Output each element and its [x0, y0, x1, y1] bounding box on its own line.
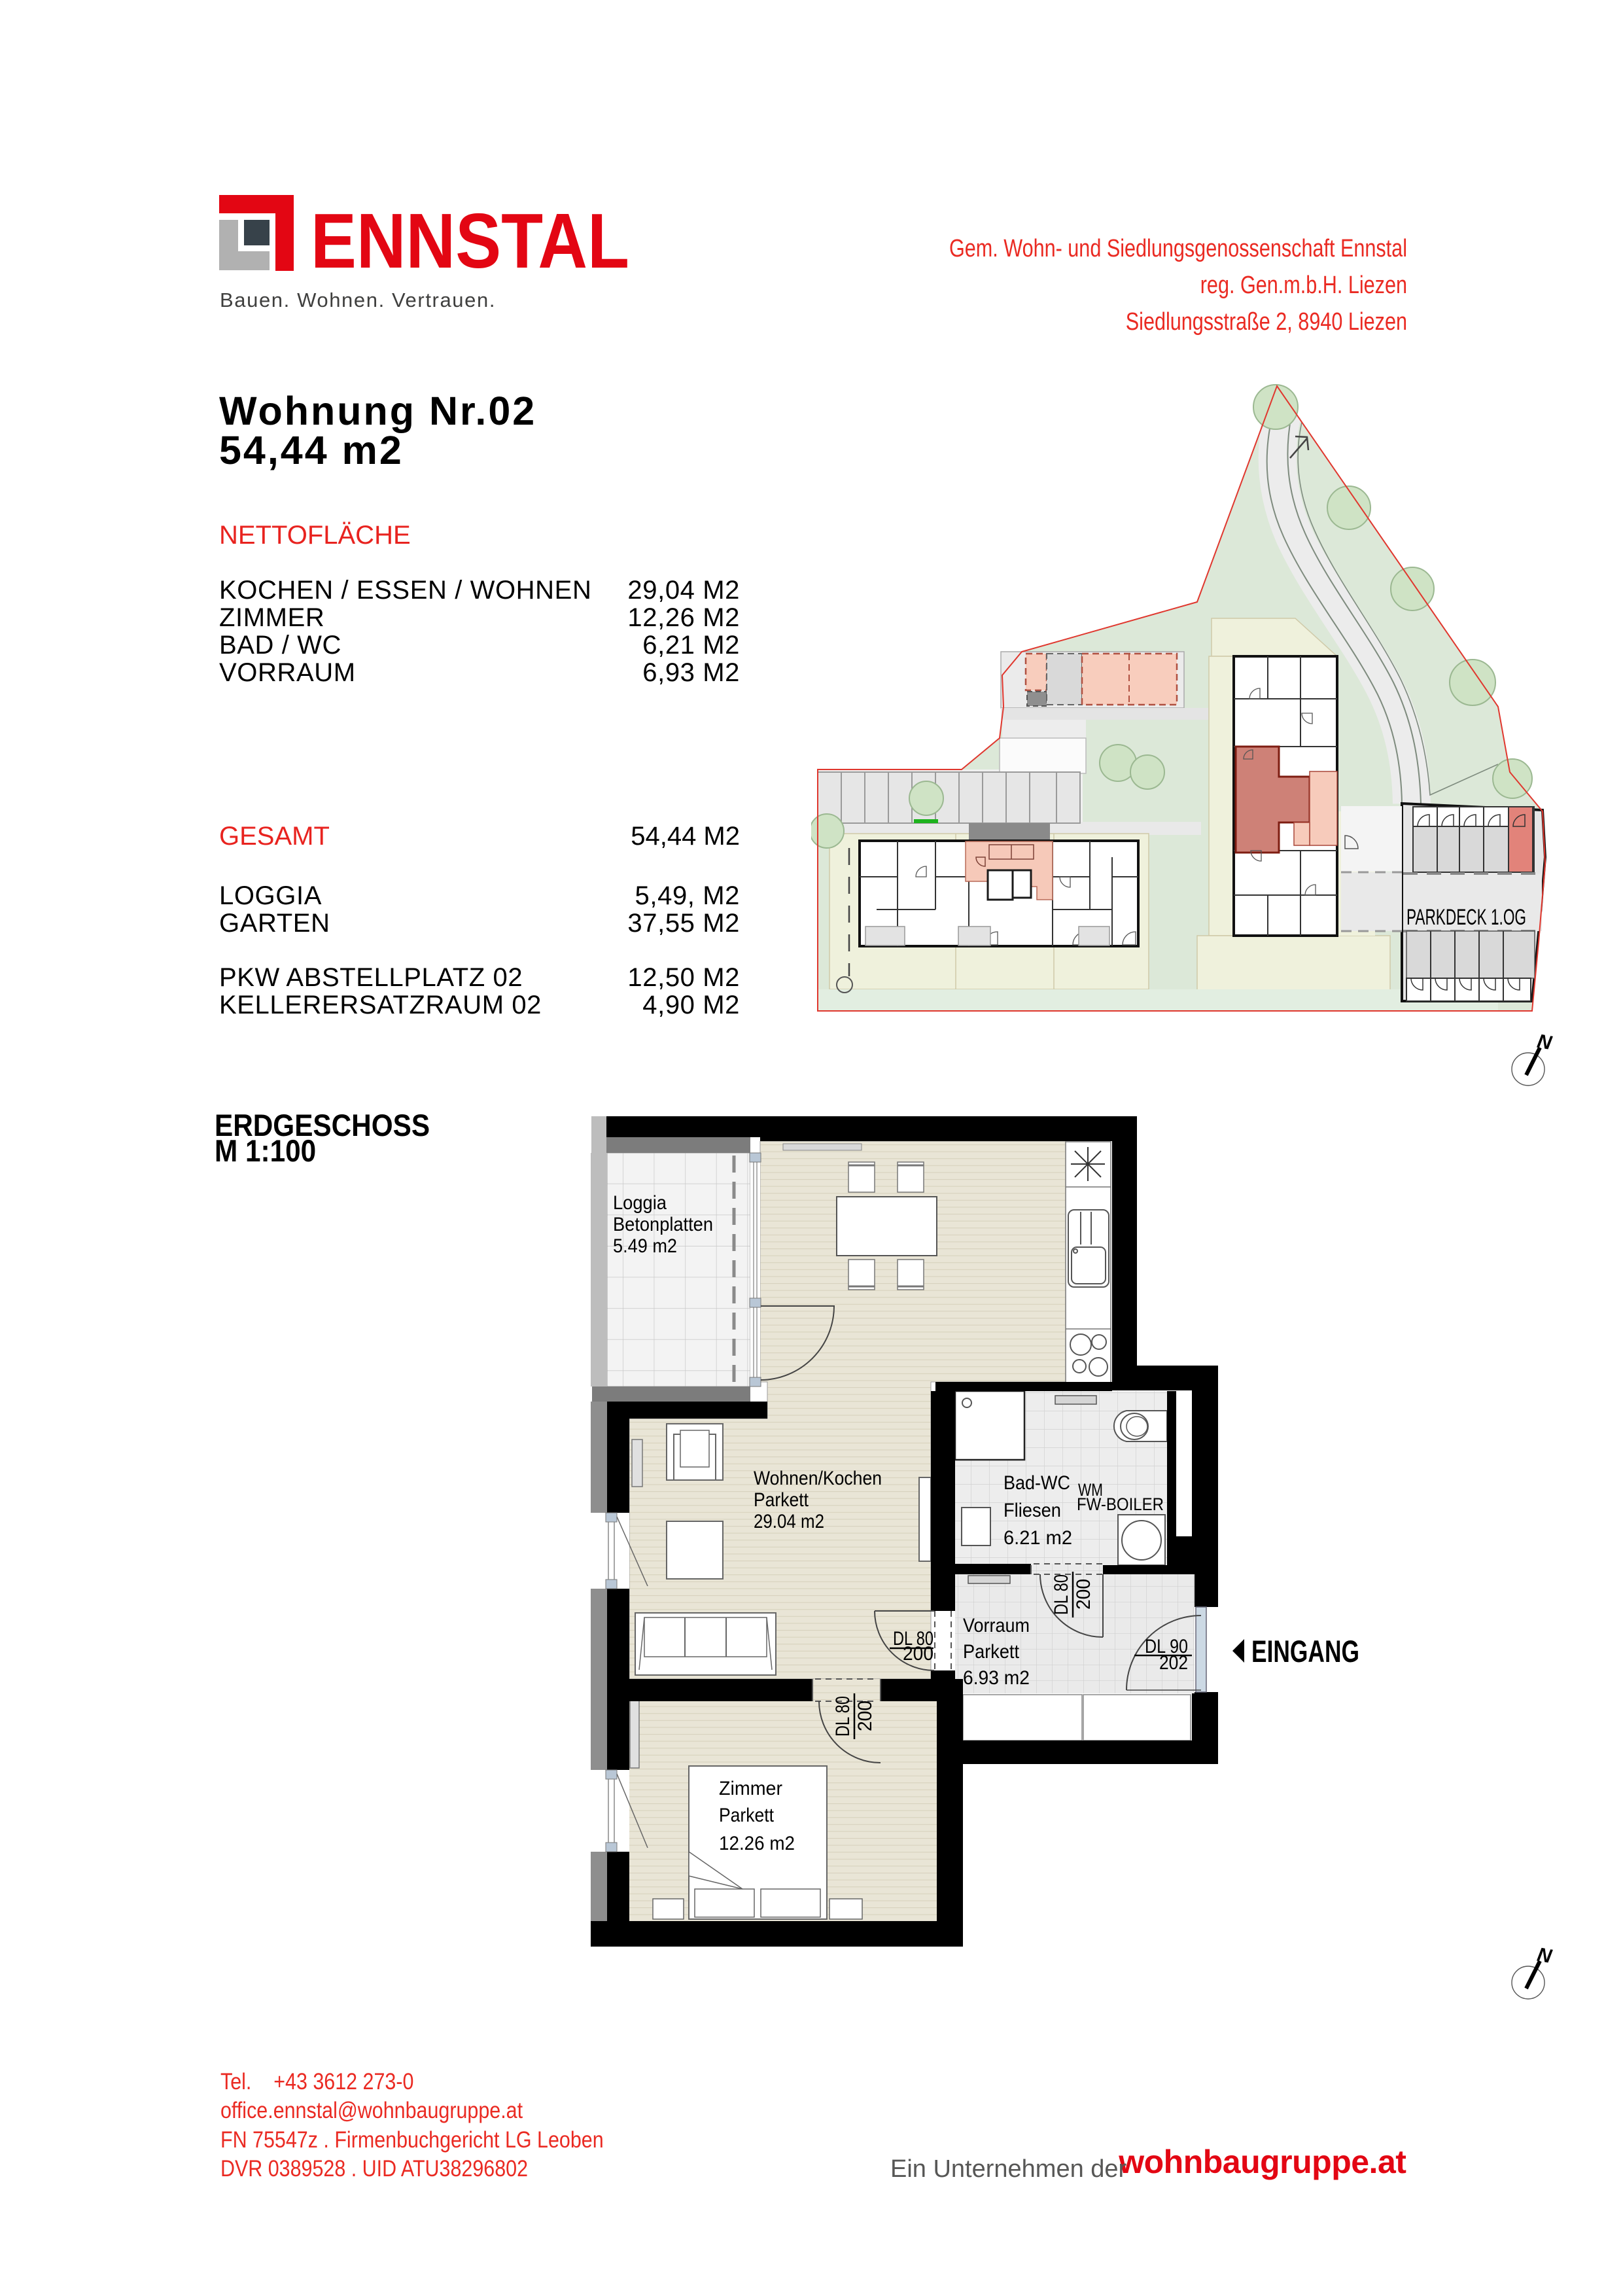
svg-text:Wohnen/Kochen: Wohnen/Kochen [754, 1468, 882, 1489]
svg-text:Parkett: Parkett [754, 1489, 809, 1511]
svg-text:Parkett: Parkett [719, 1805, 775, 1826]
svg-text:200: 200 [903, 1643, 934, 1665]
svg-text:Betonplatten: Betonplatten [613, 1214, 713, 1235]
svg-text:200: 200 [1073, 1579, 1094, 1610]
svg-text:Loggia: Loggia [613, 1192, 667, 1214]
svg-text:Parkett: Parkett [963, 1641, 1020, 1663]
svg-text:EINGANG: EINGANG [1251, 1634, 1359, 1669]
svg-text:N: N [1535, 1031, 1554, 1054]
svg-text:Vorraum: Vorraum [963, 1615, 1030, 1636]
svg-text:Bad-WC: Bad-WC [1003, 1472, 1070, 1494]
svg-text:6.21 m2: 6.21 m2 [1003, 1527, 1072, 1549]
svg-text:12.26 m2: 12.26 m2 [719, 1833, 795, 1854]
svg-text:5.49 m2: 5.49 m2 [613, 1235, 677, 1257]
svg-text:Fliesen: Fliesen [1003, 1500, 1061, 1521]
svg-text:FW-BOILER: FW-BOILER [1077, 1494, 1164, 1514]
svg-text:N: N [1535, 1944, 1554, 1968]
svg-text:PARKDECK 1.OG: PARKDECK 1.OG [1406, 905, 1526, 930]
svg-text:ENNSTAL: ENNSTAL [311, 198, 629, 275]
svg-text:6.93 m2: 6.93 m2 [963, 1667, 1030, 1689]
svg-text:DL 80: DL 80 [1051, 1574, 1072, 1615]
svg-text:DL 80: DL 80 [832, 1696, 854, 1737]
svg-text:200: 200 [854, 1701, 876, 1731]
svg-text:Zimmer: Zimmer [719, 1778, 782, 1799]
svg-text:29.04 m2: 29.04 m2 [754, 1511, 824, 1532]
